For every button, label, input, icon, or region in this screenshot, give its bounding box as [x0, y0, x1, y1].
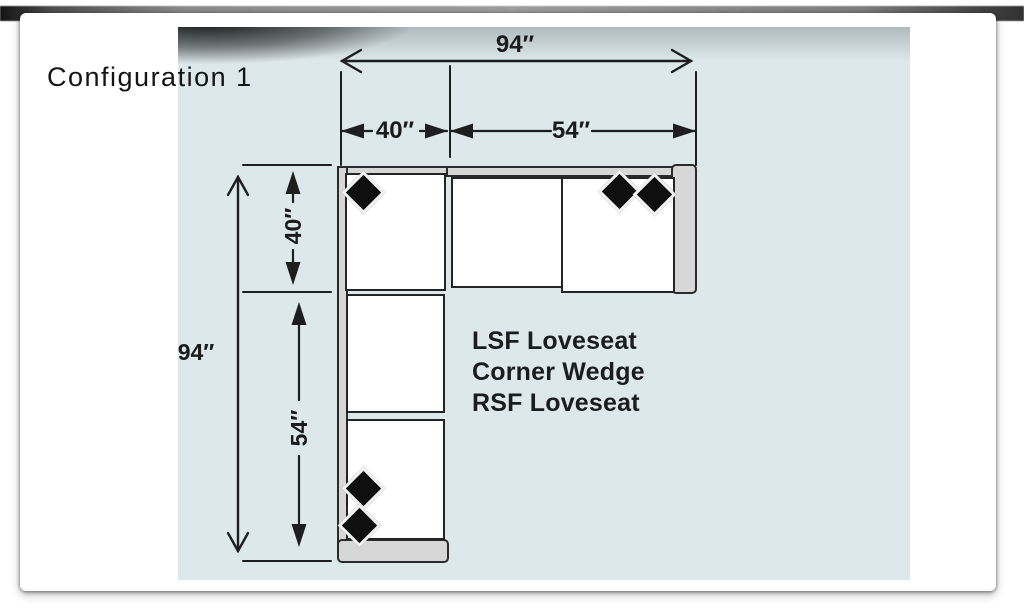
dim-width-corner-label: 40″ — [365, 117, 425, 145]
dim-total-depth-label: 94″ — [173, 339, 219, 366]
page-title: Configuration 1 — [47, 62, 253, 93]
rsf-loveseat-cushion-left — [451, 177, 563, 288]
component-item-rsf: RSF Loveseat — [472, 388, 645, 419]
dim-depth-corner-label: 40″ — [281, 196, 305, 256]
top-backrest — [446, 166, 675, 177]
diagram-canvas — [178, 27, 910, 580]
component-item-lsf: LSF Loveseat — [472, 326, 645, 357]
lsf-loveseat-cushion-top — [346, 294, 445, 413]
photo-corner-shading — [178, 27, 910, 580]
dim-width-loveseat-label: 54″ — [541, 117, 601, 145]
dim-depth-loveseat-label: 54″ — [287, 398, 311, 458]
dim-total-width-label: 94″ — [485, 31, 545, 59]
component-list: LSF Loveseat Corner Wedge RSF Loveseat — [472, 326, 645, 419]
screenshot-root: Configuration 1 — [0, 0, 1024, 609]
component-item-corner: Corner Wedge — [472, 357, 645, 388]
